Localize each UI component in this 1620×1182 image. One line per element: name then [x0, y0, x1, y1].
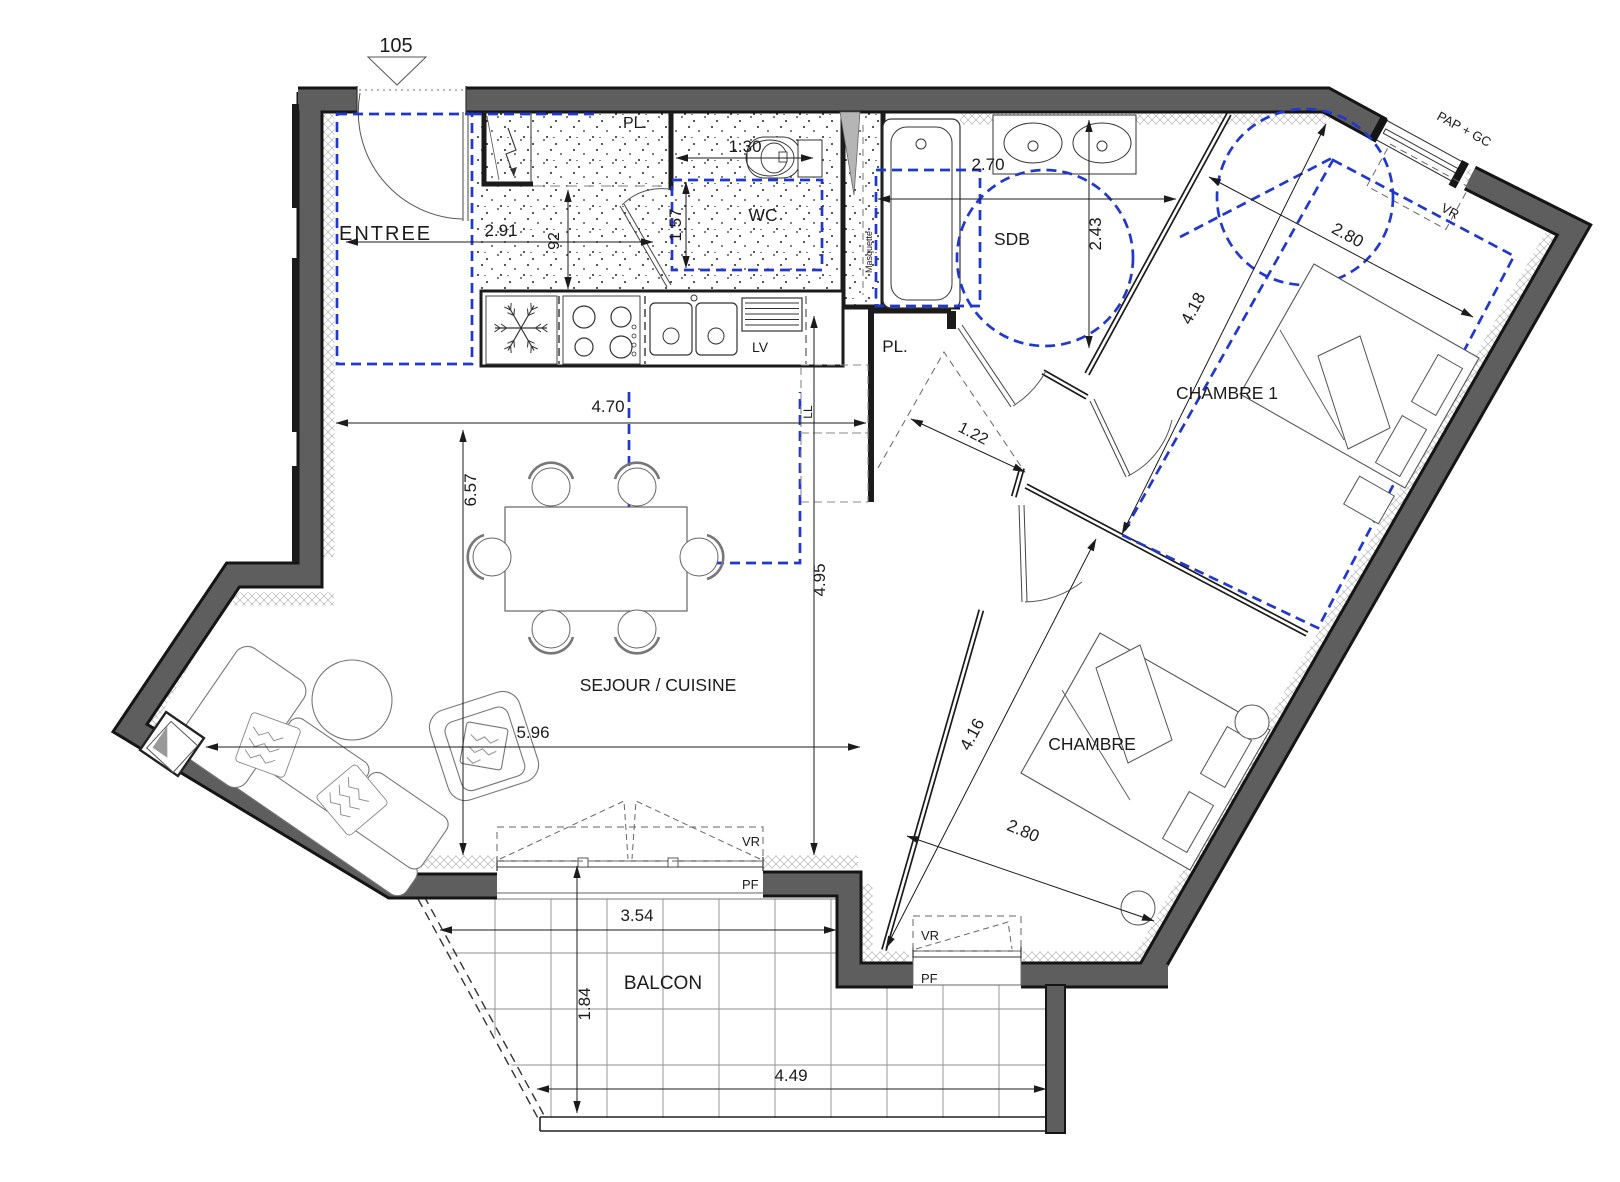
svg-text:PF: PF [921, 971, 938, 986]
svg-text:4.70: 4.70 [591, 397, 624, 416]
svg-text:SEJOUR / CUISINE: SEJOUR / CUISINE [580, 675, 737, 695]
svg-text:ENTREE: ENTREE [339, 223, 432, 245]
svg-text:4.95: 4.95 [810, 563, 829, 596]
svg-text:3.54: 3.54 [620, 906, 653, 925]
svg-text:VR: VR [742, 834, 760, 849]
svg-text:5.96: 5.96 [516, 723, 549, 742]
svg-text:Masquette: Masquette [864, 231, 874, 273]
svg-text:PF: PF [742, 877, 759, 892]
svg-text:PL.: PL. [882, 337, 908, 356]
svg-text:6.57: 6.57 [461, 473, 480, 506]
svg-text:CHAMBRE: CHAMBRE [1048, 734, 1136, 754]
svg-text:2.70: 2.70 [971, 155, 1004, 174]
svg-text:LV: LV [752, 339, 769, 355]
svg-text:1.57: 1.57 [666, 208, 685, 241]
svg-text:BALCON: BALCON [624, 973, 702, 994]
svg-text:4.49: 4.49 [774, 1066, 807, 1085]
svg-text:LL: LL [801, 405, 815, 419]
svg-text:CHAMBRE 1: CHAMBRE 1 [1176, 383, 1278, 403]
svg-text:92: 92 [546, 232, 563, 250]
svg-text:105: 105 [379, 35, 412, 57]
svg-text:WC: WC [748, 205, 777, 225]
svg-text:2.91: 2.91 [484, 221, 517, 240]
svg-text:2.43: 2.43 [1086, 217, 1105, 250]
svg-text:VR: VR [921, 928, 939, 943]
svg-text:SDB: SDB [994, 229, 1030, 249]
svg-text:PL.: PL. [623, 115, 647, 132]
svg-text:1.30: 1.30 [728, 137, 761, 156]
svg-text:1.84: 1.84 [575, 987, 594, 1020]
